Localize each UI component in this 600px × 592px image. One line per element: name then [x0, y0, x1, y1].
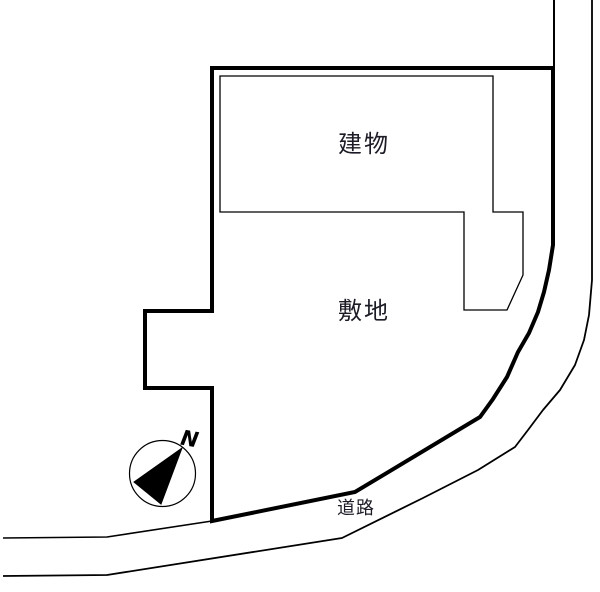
building-outline [220, 76, 523, 310]
road-outer-edge [3, 0, 592, 576]
compass-north-label: N [179, 426, 201, 453]
road-label: 道路 [337, 498, 375, 519]
site-plan-drawing: N 建物 敷地 道路 [0, 0, 600, 592]
north-compass: N [130, 426, 201, 507]
site-plan-canvas: N 建物 敷地 道路 [0, 0, 600, 592]
building-label: 建物 [338, 130, 390, 158]
road-inner-edge-left [3, 521, 212, 538]
compass-needle-icon [134, 448, 182, 504]
site-label: 敷地 [338, 297, 390, 325]
